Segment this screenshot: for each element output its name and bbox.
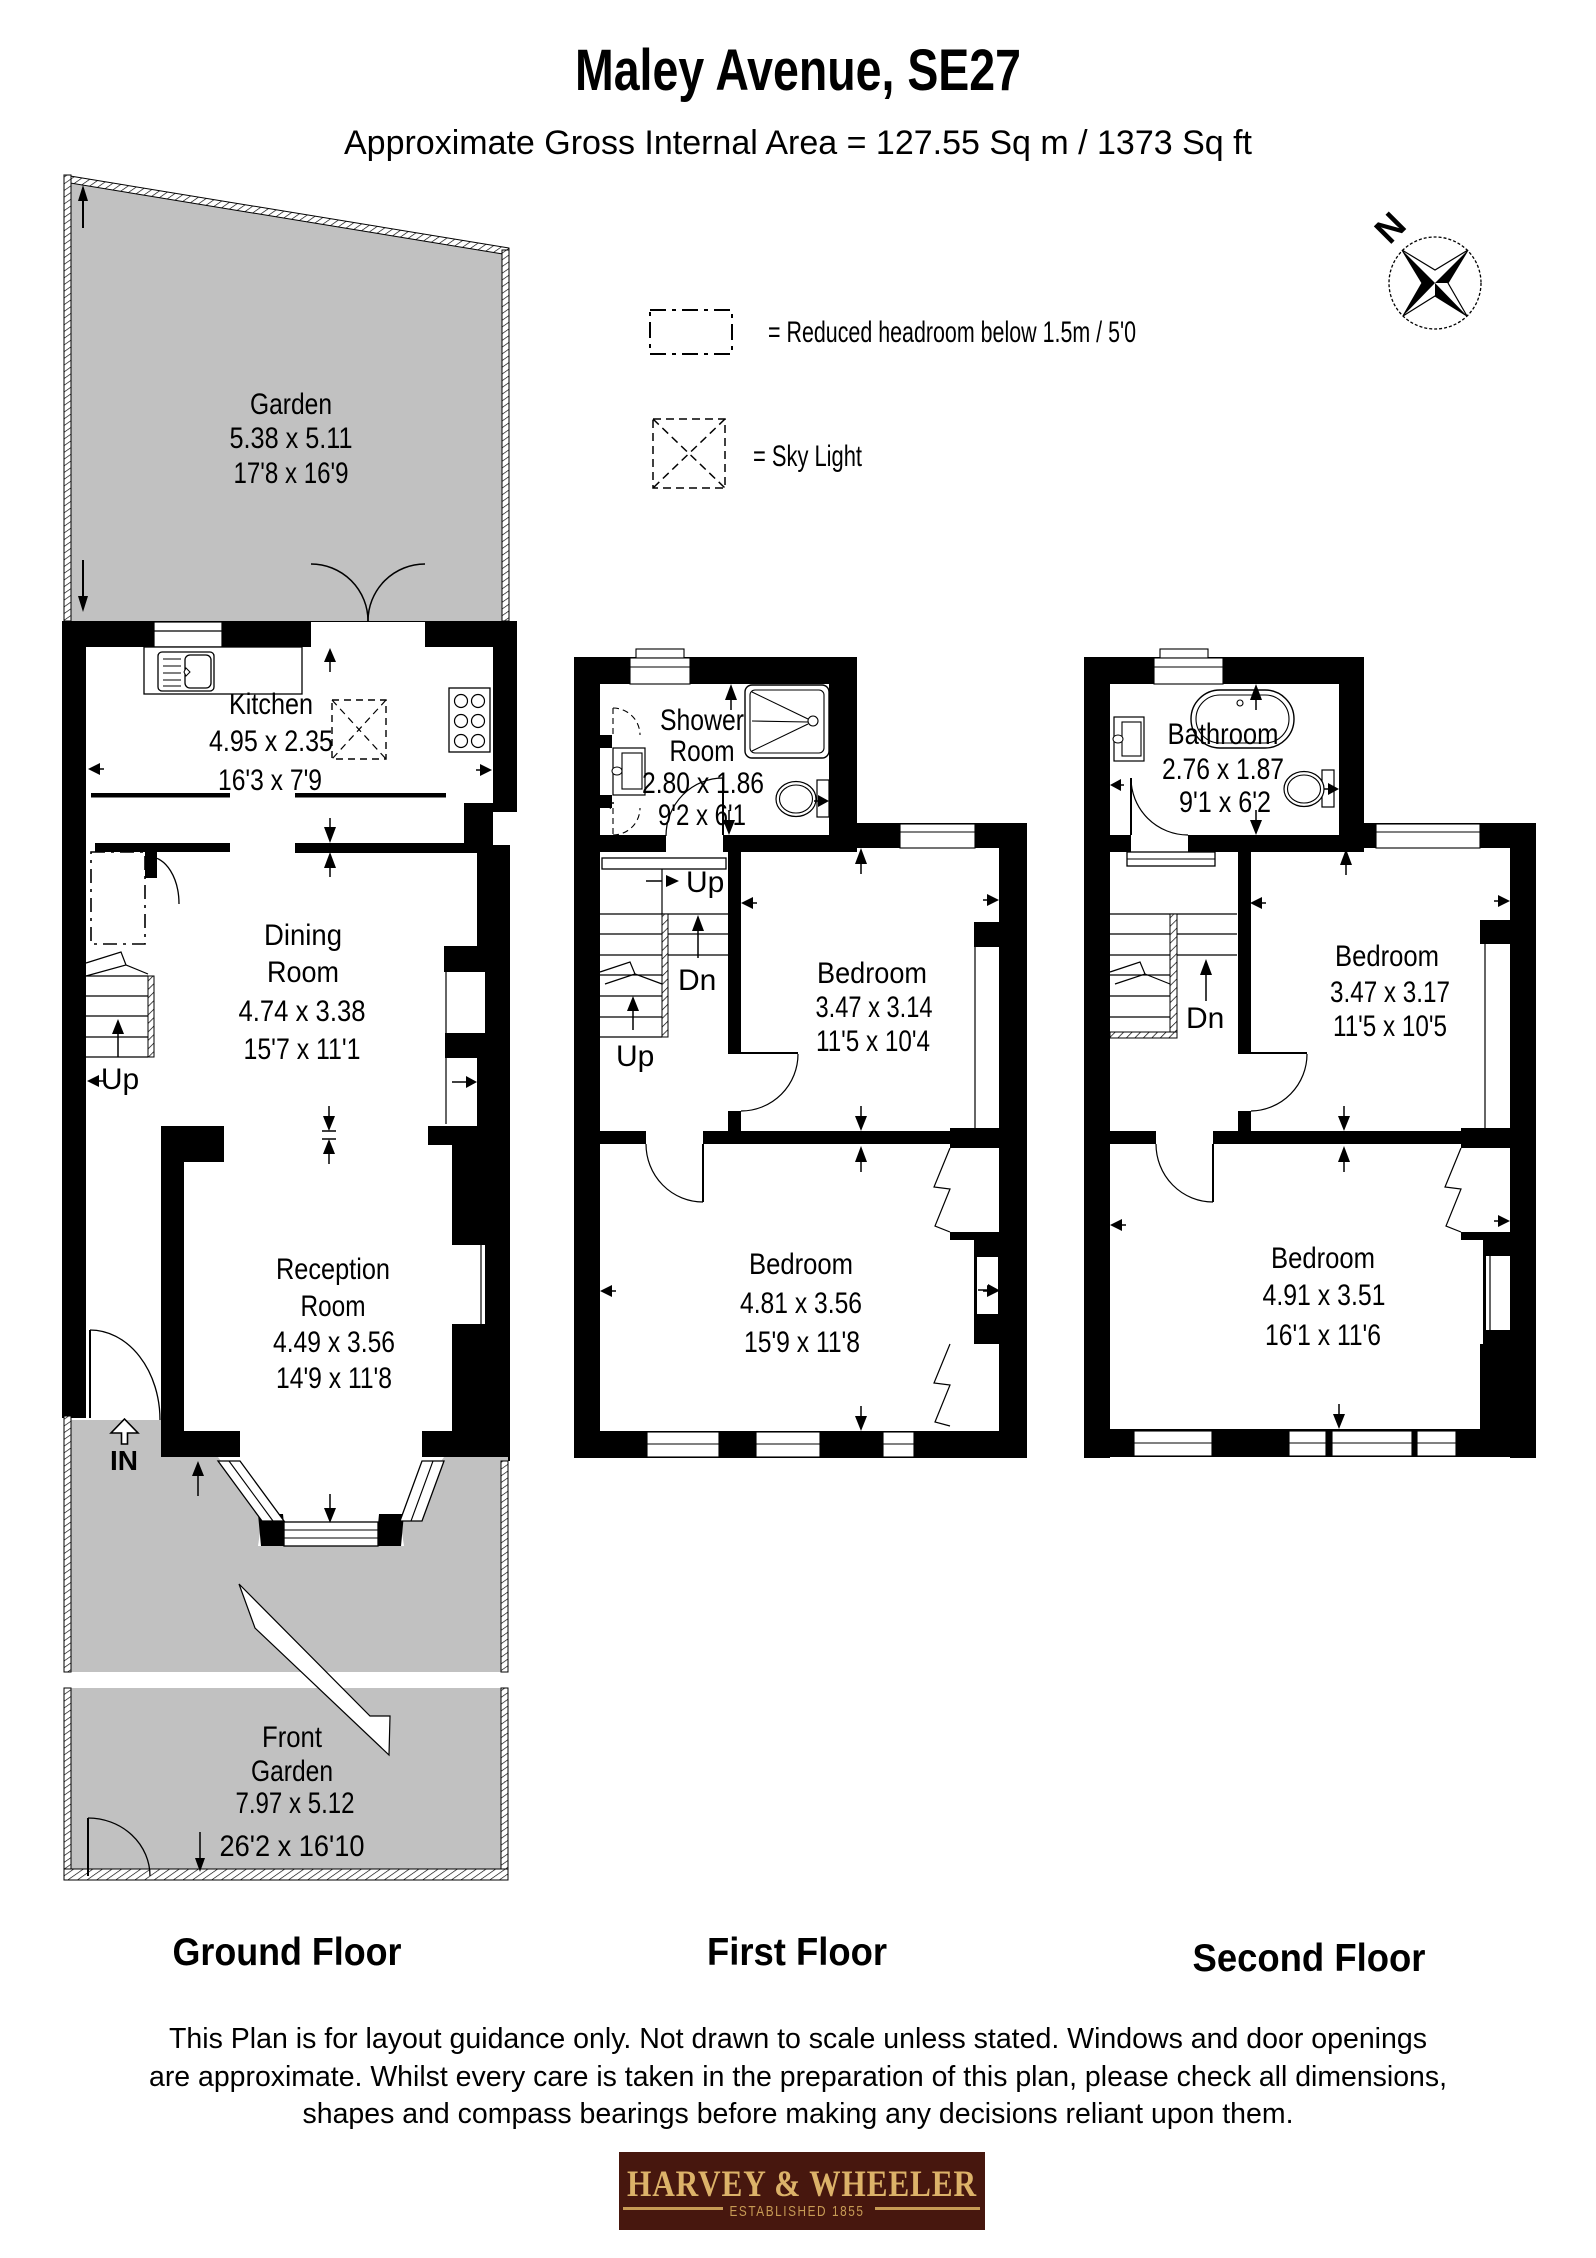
svg-text:Ground Floor: Ground Floor <box>173 1931 402 1974</box>
svg-text:Dining: Dining <box>264 919 342 952</box>
svg-text:Second Floor: Second Floor <box>1193 1937 1426 1980</box>
svg-text:Up: Up <box>101 1063 139 1096</box>
svg-text:14'9 x 11'8: 14'9 x 11'8 <box>276 1362 392 1395</box>
svg-text:7.97 x 5.12: 7.97 x 5.12 <box>236 1787 355 1820</box>
svg-text:3.47 x 3.17: 3.47 x 3.17 <box>1330 976 1450 1009</box>
svg-text:Dn: Dn <box>1186 1002 1224 1035</box>
svg-text:are approximate. Whilst every: are approximate. Whilst every care is ta… <box>149 2061 1447 2093</box>
svg-text:4.91 x 3.51: 4.91 x 3.51 <box>1263 1279 1386 1312</box>
svg-text:Kitchen: Kitchen <box>229 688 313 721</box>
svg-text:16'3 x 7'9: 16'3 x 7'9 <box>218 764 322 797</box>
svg-text:4.74 x 3.38: 4.74 x 3.38 <box>239 995 366 1028</box>
svg-text:Bathroom: Bathroom <box>1168 718 1279 751</box>
svg-text:11'5 x 10'4: 11'5 x 10'4 <box>816 1025 930 1058</box>
svg-text:4.95 x 2.35: 4.95 x 2.35 <box>209 725 333 758</box>
svg-text:IN: IN <box>110 1445 138 1476</box>
svg-text:4.49 x 3.56: 4.49 x 3.56 <box>273 1326 395 1359</box>
svg-text:26'2 x 16'10: 26'2 x 16'10 <box>220 1830 365 1863</box>
svg-text:Bedroom: Bedroom <box>1335 940 1439 973</box>
svg-text:Front: Front <box>262 1721 323 1754</box>
svg-text:9'2 x 6'1: 9'2 x 6'1 <box>658 799 746 832</box>
svg-text:15'7 x 11'1: 15'7 x 11'1 <box>244 1033 361 1066</box>
svg-text:shapes and compass bearings be: shapes and compass bearings before makin… <box>303 2098 1294 2130</box>
svg-text:Room: Room <box>670 735 735 768</box>
svg-text:16'1 x 11'6: 16'1 x 11'6 <box>1265 1319 1381 1352</box>
svg-text:Up: Up <box>686 866 724 899</box>
svg-text:4.81 x 3.56: 4.81 x 3.56 <box>740 1287 862 1320</box>
svg-text:9'1 x 6'2: 9'1 x 6'2 <box>1179 786 1271 819</box>
svg-text:Dn: Dn <box>678 964 716 997</box>
svg-text:3.47 x 3.14: 3.47 x 3.14 <box>816 991 933 1024</box>
svg-text:Reception: Reception <box>276 1253 390 1286</box>
svg-text:This Plan is for layout guidan: This Plan is for layout guidance only. N… <box>169 2023 1427 2055</box>
svg-text:= Sky Light: = Sky Light <box>753 440 862 473</box>
svg-text:Garden: Garden <box>251 1755 333 1788</box>
svg-text:Bedroom: Bedroom <box>1271 1242 1375 1275</box>
svg-text:= Reduced headroom below 1.5m: = Reduced headroom below 1.5m / 5'0 <box>768 316 1136 349</box>
svg-text:15'9 x 11'8: 15'9 x 11'8 <box>744 1326 860 1359</box>
svg-text:Room: Room <box>301 1290 366 1323</box>
svg-text:Garden: Garden <box>250 388 332 421</box>
svg-text:HARVEY & WHEELER: HARVEY & WHEELER <box>627 2164 977 2205</box>
svg-text:Approximate Gross Internal Are: Approximate Gross Internal Area = 127.55… <box>344 124 1253 162</box>
svg-text:Up: Up <box>616 1040 654 1073</box>
svg-text:Maley Avenue, SE27: Maley Avenue, SE27 <box>575 38 1021 103</box>
svg-text:11'5 x 10'5: 11'5 x 10'5 <box>1333 1010 1447 1043</box>
svg-text:17'8 x 16'9: 17'8 x 16'9 <box>234 457 349 490</box>
svg-text:2.80 x 1.86: 2.80 x 1.86 <box>642 767 764 800</box>
svg-text:ESTABLISHED 1855: ESTABLISHED 1855 <box>730 2203 865 2220</box>
svg-text:Bedroom: Bedroom <box>817 957 927 990</box>
svg-text:5.38 x 5.11: 5.38 x 5.11 <box>230 422 353 455</box>
svg-text:Room: Room <box>267 956 339 989</box>
svg-text:Bedroom: Bedroom <box>749 1248 853 1281</box>
svg-text:2.76 x 1.87: 2.76 x 1.87 <box>1162 753 1284 786</box>
svg-text:First Floor: First Floor <box>707 1931 887 1974</box>
